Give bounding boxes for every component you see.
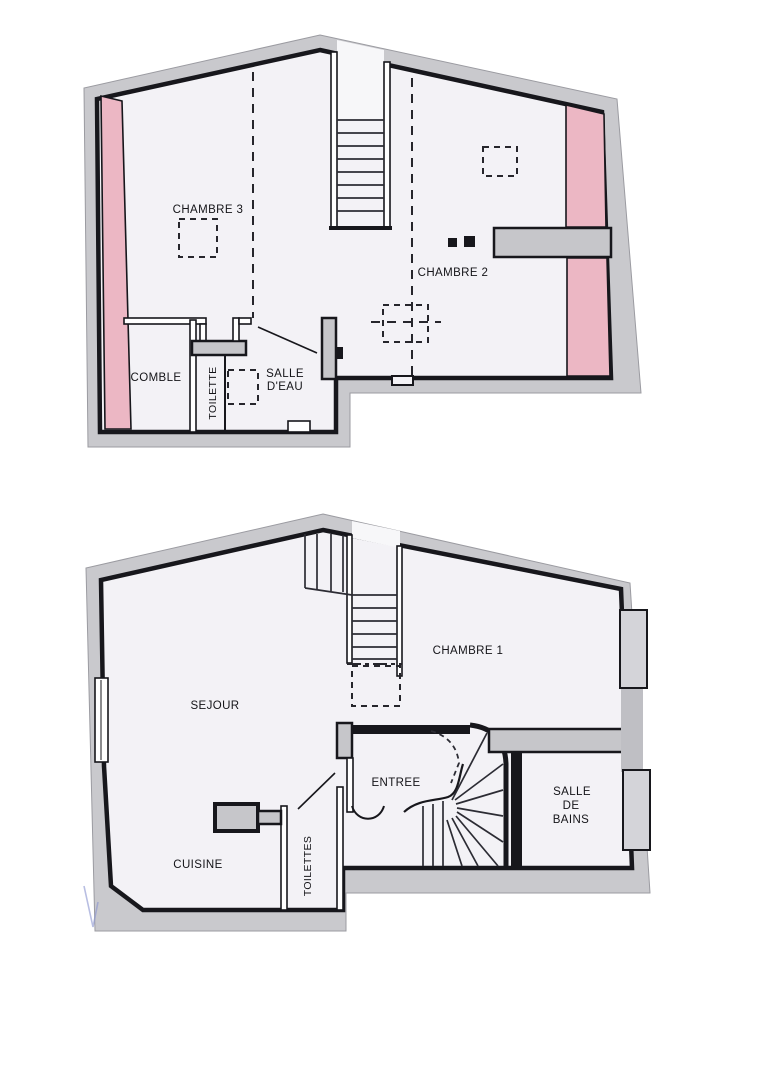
kitchen-chimney-block xyxy=(215,804,258,831)
room-label-salle-eau-line1: SALLE xyxy=(266,368,304,380)
chambre2-wall-niche xyxy=(392,376,413,385)
chambre2-partition-wall xyxy=(494,228,611,257)
wall-pillar xyxy=(337,723,352,758)
room-label-cuisine: CUISINE xyxy=(173,859,222,871)
floor-plan-page: CHAMBRE 3 CHAMBRE 2 COMBLE TOILETTE SALL… xyxy=(0,0,763,1080)
room-label-chambre-1: CHAMBRE 1 xyxy=(433,645,504,657)
room-label-toilettes: TOILETTES xyxy=(302,836,314,897)
entree-west-wall xyxy=(347,758,353,812)
chambre1-window-upper xyxy=(620,610,647,688)
chambre1-window-lower xyxy=(623,770,650,850)
room-label-comble: COMBLE xyxy=(131,372,182,384)
room-label-sejour: SEJOUR xyxy=(190,700,239,712)
lower-floor-plan: SEJOUR CHAMBRE 1 ENTREE CUISINE TOILETTE… xyxy=(84,514,650,931)
kitchen-wall-wing xyxy=(258,811,281,824)
post-icon xyxy=(448,238,457,247)
room-label-entree: ENTREE xyxy=(371,777,420,789)
lower-floor-area xyxy=(101,530,632,910)
bathroom-west-wall xyxy=(511,752,522,868)
room-label-salle-bains-line1: SALLE xyxy=(553,786,591,798)
low-ceiling-zone-right-upper xyxy=(566,105,606,227)
bathroom-north-wall xyxy=(489,729,631,752)
room-label-chambre-2: CHAMBRE 2 xyxy=(418,267,489,279)
sejour-window xyxy=(95,678,108,762)
room-label-salle-eau-line2: D'EAU xyxy=(267,381,303,393)
door-stop xyxy=(336,347,343,359)
room-label-chambre-3: CHAMBRE 3 xyxy=(173,204,244,216)
upper-floor-plan: CHAMBRE 3 CHAMBRE 2 COMBLE TOILETTE SALL… xyxy=(84,35,641,447)
room-label-salle-bains-line3: BAINS xyxy=(553,814,590,826)
post-icon xyxy=(464,236,475,247)
salle-eau-washbasin xyxy=(288,421,310,432)
upper-stairwell-opening xyxy=(337,40,384,120)
room-label-salle-bains-line2: DE xyxy=(563,800,580,812)
low-ceiling-zone-right-lower xyxy=(567,258,610,376)
right-wall-pier xyxy=(621,686,643,772)
entree-north-wall xyxy=(351,725,470,734)
room-label-toilette: TOILETTE xyxy=(207,366,219,419)
floor-plan-drawing: CHAMBRE 3 CHAMBRE 2 COMBLE TOILETTE SALL… xyxy=(0,0,763,1080)
